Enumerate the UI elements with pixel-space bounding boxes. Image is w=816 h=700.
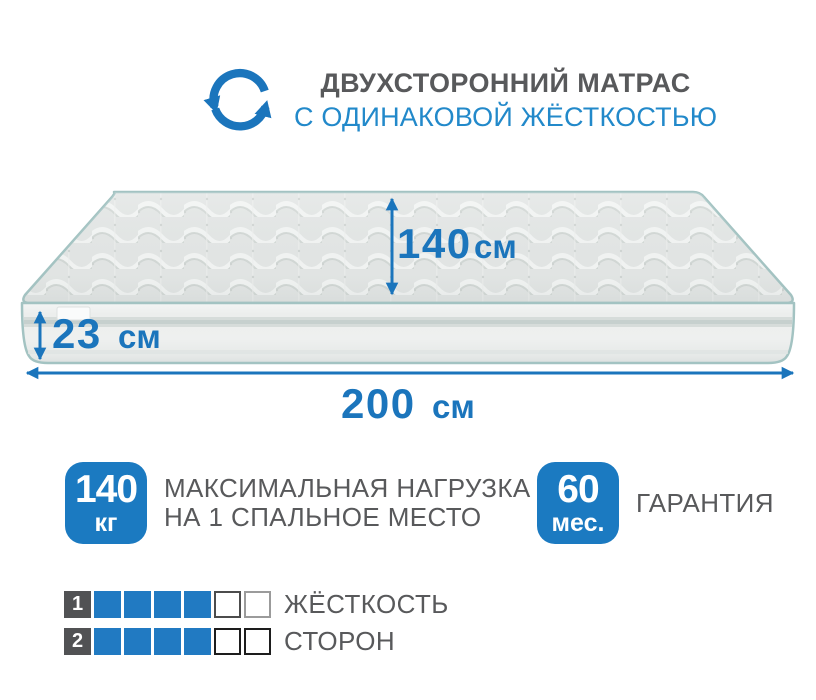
rating-label: СТОРОН [284, 626, 395, 657]
rating-cell-empty [214, 628, 241, 655]
rating-cell-filled [94, 591, 121, 618]
rating-cell-filled [184, 628, 211, 655]
width-dimension-unit: см [474, 228, 517, 265]
max-load-value: 140 [75, 470, 137, 509]
width-dimension-value: 140 [397, 220, 472, 267]
length-dimension-unit: см [432, 388, 475, 425]
rating-label: ЖЁСТКОСТЬ [284, 589, 449, 620]
rating-cell-empty [244, 591, 271, 618]
warranty-label-line1: ГАРАНТИЯ [636, 489, 774, 518]
warranty-unit: мес. [552, 511, 605, 536]
mattress-illustration: 140 см 23 см 200 см [0, 165, 816, 430]
max-load-label-line1: МАКСИМАЛЬНАЯ НАГРУЗКА [164, 474, 531, 503]
max-load-label-line2: НА 1 СПАЛЬНОЕ МЕСТО [164, 503, 531, 532]
rating-row: 2СТОРОН [64, 626, 449, 657]
warranty-badge: 60 мес. [537, 462, 619, 544]
rating-cell-filled [124, 591, 151, 618]
rating-row-number: 2 [64, 628, 91, 655]
rotate-arrows-icon [201, 62, 279, 138]
rating-cell-filled [154, 591, 181, 618]
mattress-infographic: ДВУХСТОРОННИЙ МАТРАС С ОДИНАКОВОЙ ЖЁСТКО… [0, 0, 816, 700]
warranty-value: 60 [557, 470, 598, 509]
rating-row: 1ЖЁСТКОСТЬ [64, 589, 449, 620]
rating-cell-filled [184, 591, 211, 618]
rating-cell-empty [244, 628, 271, 655]
header-text: ДВУХСТОРОННИЙ МАТРАС С ОДИНАКОВОЙ ЖЁСТКО… [294, 68, 717, 133]
length-dimension-value: 200 [341, 380, 416, 427]
header: ДВУХСТОРОННИЙ МАТРАС С ОДИНАКОВОЙ ЖЁСТКО… [201, 62, 717, 138]
warranty-feature: 60 мес. ГАРАНТИЯ [537, 462, 774, 544]
warranty-label: ГАРАНТИЯ [636, 489, 774, 518]
page-title: ДВУХСТОРОННИЙ МАТРАС [321, 68, 691, 99]
max-load-label: МАКСИМАЛЬНАЯ НАГРУЗКА НА 1 СПАЛЬНОЕ МЕСТ… [164, 474, 531, 532]
rating-cell-empty [214, 591, 241, 618]
max-load-unit: кг [95, 511, 118, 536]
ratings-grid: 1ЖЁСТКОСТЬ2СТОРОН [64, 589, 449, 657]
rating-cell-filled [94, 628, 121, 655]
rating-row-number: 1 [64, 591, 91, 618]
height-dimension-unit: см [118, 318, 161, 355]
rating-cell-filled [124, 628, 151, 655]
page-subtitle: С ОДИНАКОВОЙ ЖЁСТКОСТЬЮ [294, 102, 717, 133]
rating-cell-filled [154, 628, 181, 655]
max-load-feature: 140 кг МАКСИМАЛЬНАЯ НАГРУЗКА НА 1 СПАЛЬН… [65, 462, 531, 544]
max-load-badge: 140 кг [65, 462, 147, 544]
height-dimension-value: 23 [52, 310, 102, 357]
